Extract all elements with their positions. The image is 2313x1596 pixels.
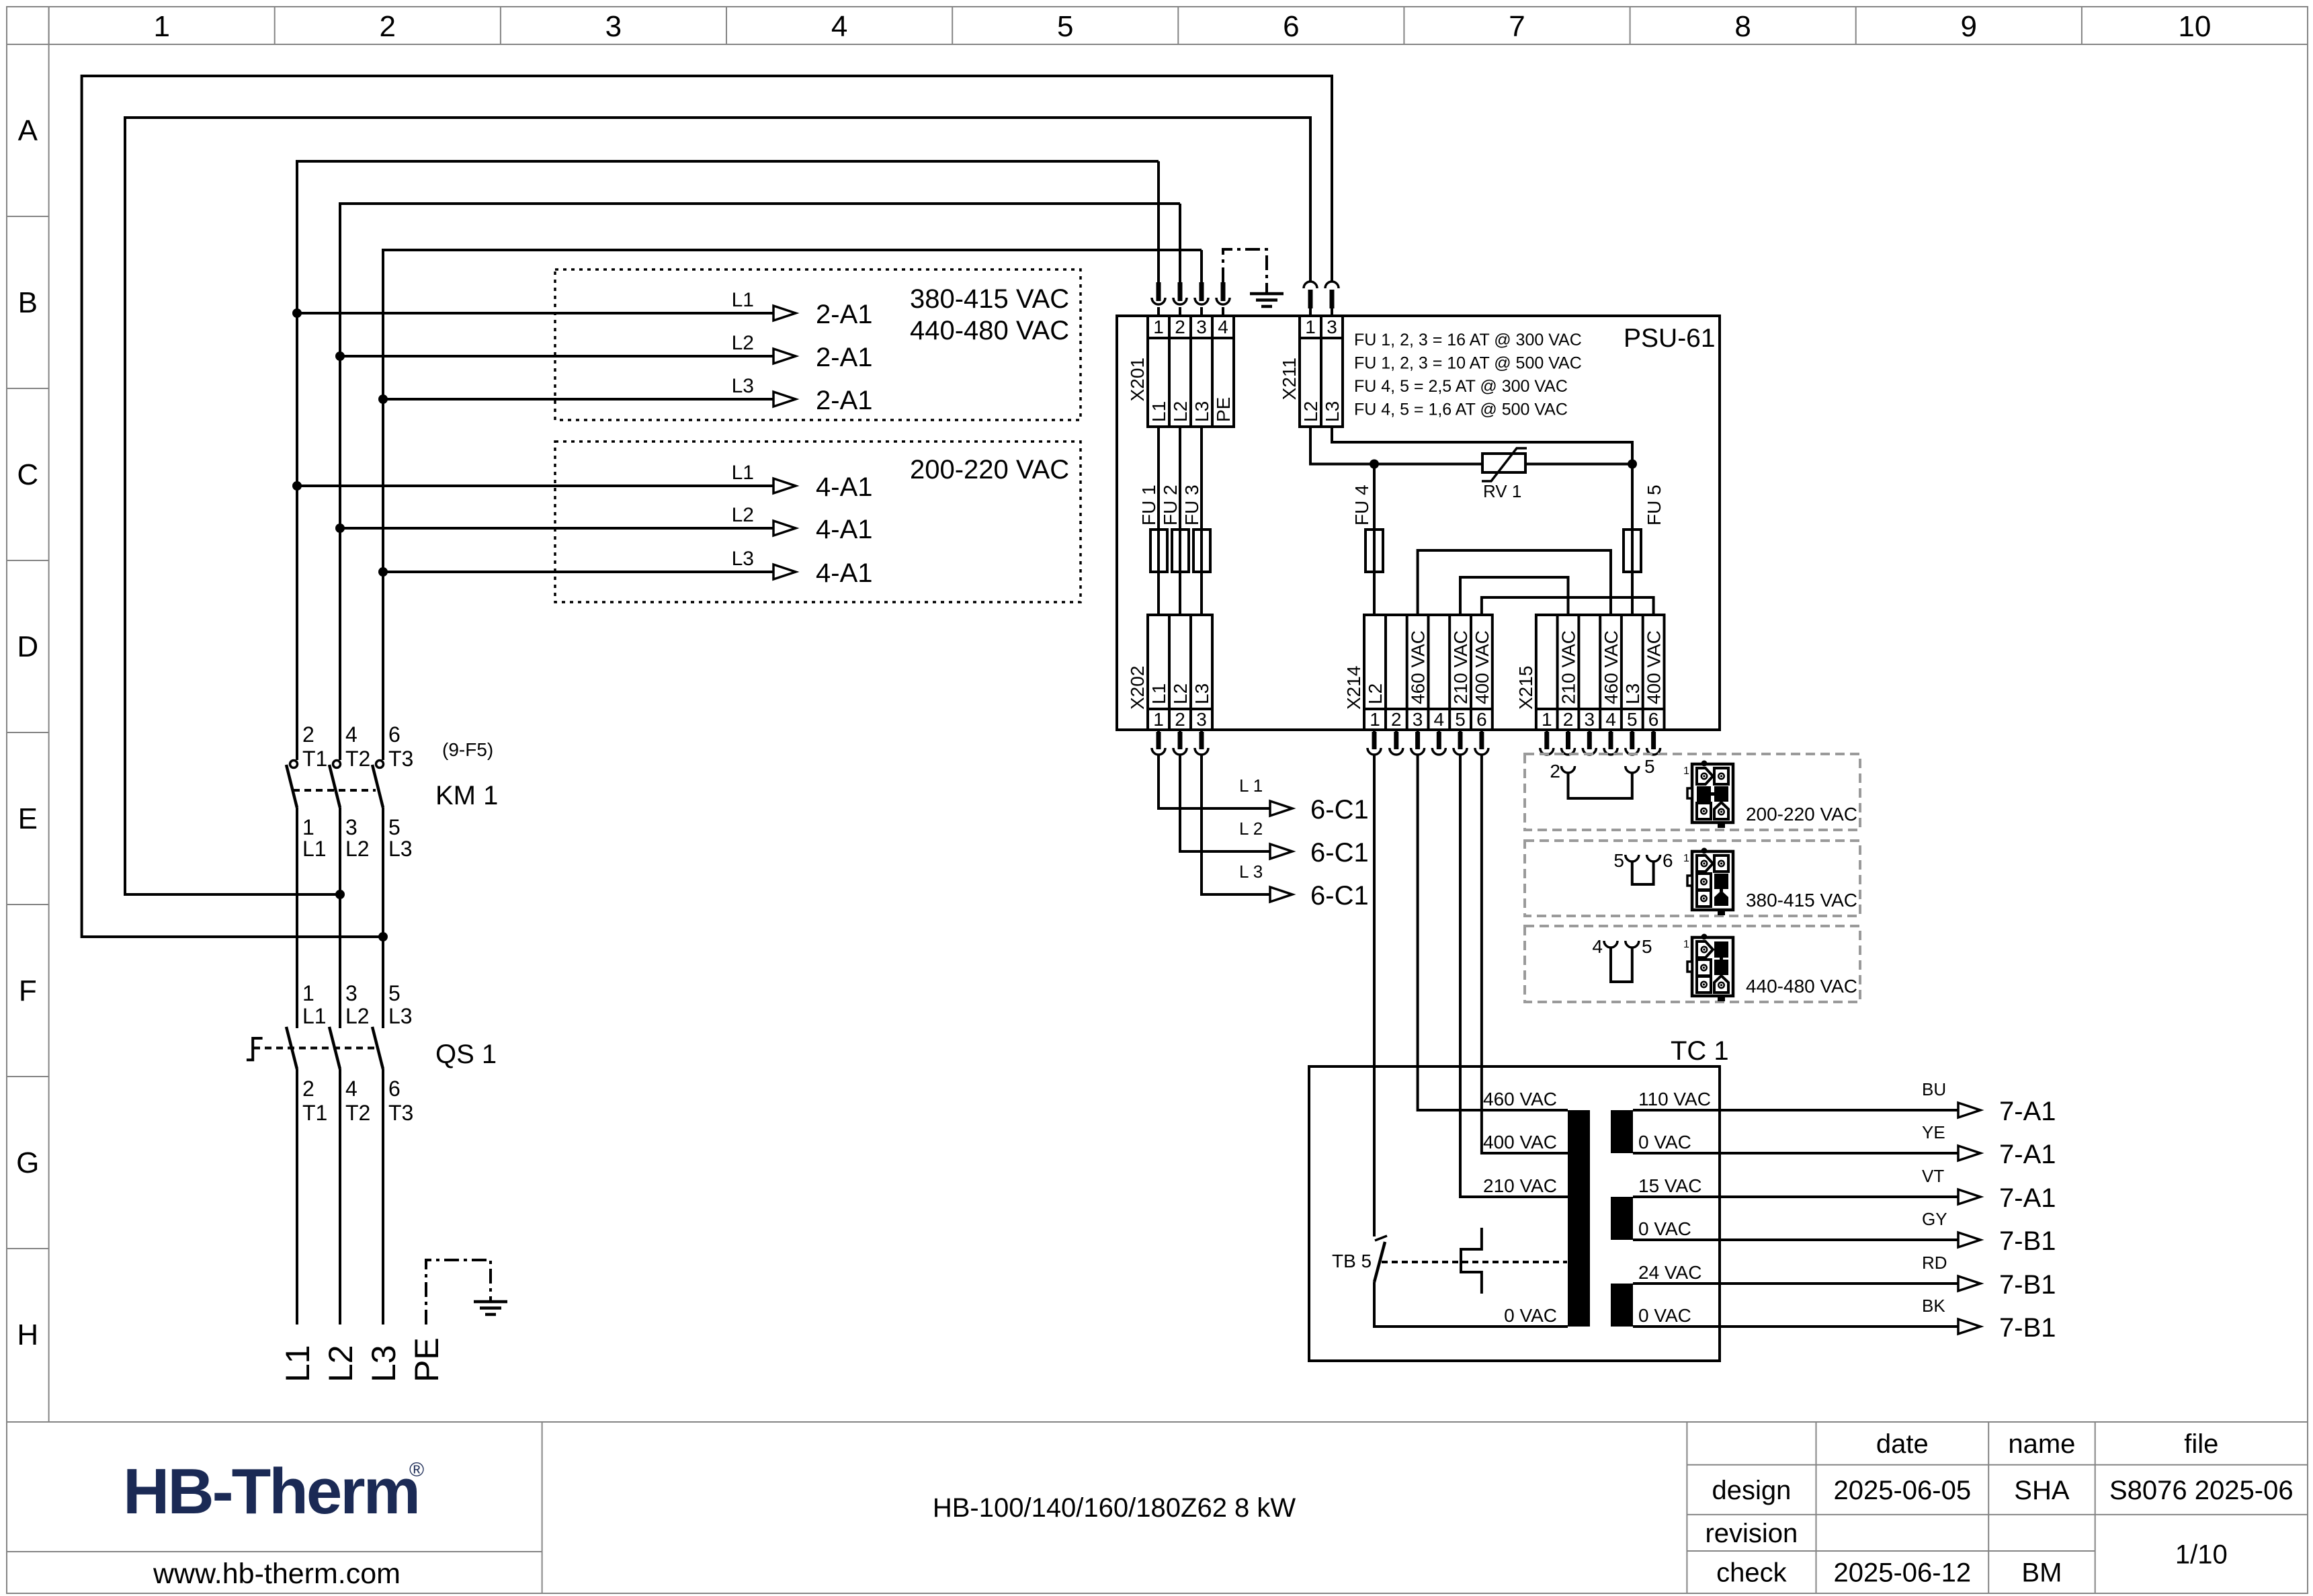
- svg-text:T3: T3: [388, 747, 413, 771]
- svg-text:0 VAC: 0 VAC: [1638, 1218, 1691, 1239]
- svg-text:www.hb-therm.com: www.hb-therm.com: [153, 1558, 401, 1590]
- svg-text:2-A1: 2-A1: [816, 386, 873, 415]
- svg-text:T2: T2: [345, 747, 370, 771]
- svg-text:C: C: [17, 458, 38, 491]
- svg-text:7-B1: 7-B1: [1999, 1226, 2056, 1256]
- svg-text:460 VAC: 460 VAC: [1483, 1089, 1557, 1109]
- svg-text:2: 2: [1550, 761, 1560, 782]
- svg-text:H: H: [17, 1318, 38, 1351]
- svg-text:2-A1: 2-A1: [816, 300, 873, 329]
- svg-text:X201: X201: [1127, 358, 1148, 401]
- svg-text:110 VAC: 110 VAC: [1638, 1089, 1711, 1109]
- svg-text:8: 8: [1734, 10, 1751, 43]
- svg-text:200-220 VAC: 200-220 VAC: [1746, 804, 1857, 825]
- svg-text:TB 5: TB 5: [1332, 1251, 1372, 1271]
- svg-text:1: 1: [302, 815, 314, 839]
- svg-text:380-415 VAC: 380-415 VAC: [1746, 890, 1857, 911]
- svg-text:T3: T3: [388, 1101, 413, 1125]
- svg-text:400 VAC: 400 VAC: [1483, 1132, 1557, 1152]
- svg-text:0 VAC: 0 VAC: [1504, 1305, 1557, 1326]
- svg-text:1/10: 1/10: [2175, 1540, 2228, 1570]
- svg-text:0 VAC: 0 VAC: [1638, 1132, 1691, 1152]
- svg-text:1: 1: [1683, 765, 1689, 777]
- svg-text:L3: L3: [388, 1004, 413, 1028]
- svg-text:L2: L2: [1170, 401, 1191, 422]
- svg-text:6-C1: 6-C1: [1310, 881, 1369, 911]
- svg-text:X215: X215: [1515, 666, 1536, 710]
- svg-text:L2: L2: [345, 837, 370, 861]
- svg-text:FU 4, 5 = 2,5 AT @ 300 VAC: FU 4, 5 = 2,5 AT @ 300 VAC: [1354, 377, 1568, 396]
- svg-text:6: 6: [388, 722, 401, 747]
- svg-text:X214: X214: [1343, 666, 1364, 710]
- svg-text:0 VAC: 0 VAC: [1638, 1305, 1691, 1326]
- svg-text:L3: L3: [1322, 401, 1343, 422]
- svg-text:PSU-61: PSU-61: [1624, 324, 1716, 353]
- svg-text:6: 6: [388, 1077, 401, 1101]
- svg-text:date: date: [1876, 1429, 1929, 1459]
- svg-text:7-A1: 7-A1: [1999, 1140, 2056, 1169]
- svg-text:FU 1, 2, 3 = 16 AT @ 300 VAC: FU 1, 2, 3 = 16 AT @ 300 VAC: [1354, 331, 1582, 349]
- svg-text:7-B1: 7-B1: [1999, 1313, 2056, 1343]
- svg-text:3: 3: [1413, 709, 1423, 730]
- svg-text:L1: L1: [732, 289, 754, 311]
- svg-text:5: 5: [1613, 850, 1624, 871]
- svg-text:L1: L1: [279, 1345, 317, 1382]
- svg-text:4: 4: [1218, 317, 1228, 337]
- svg-text:2025-06-12: 2025-06-12: [1833, 1558, 1971, 1588]
- svg-text:5: 5: [388, 815, 401, 839]
- svg-text:5: 5: [1642, 936, 1652, 957]
- svg-text:2: 2: [1563, 709, 1574, 730]
- svg-text:1: 1: [1542, 709, 1552, 730]
- svg-text:1: 1: [1683, 939, 1689, 950]
- svg-text:2: 2: [1391, 709, 1402, 730]
- svg-text:15 VAC: 15 VAC: [1638, 1175, 1701, 1196]
- svg-text:TC 1: TC 1: [1671, 1036, 1729, 1066]
- svg-text:460 VAC: 460 VAC: [1408, 630, 1429, 704]
- svg-text:design: design: [1712, 1476, 1791, 1505]
- svg-text:L2: L2: [322, 1345, 360, 1382]
- svg-text:7: 7: [1509, 10, 1525, 43]
- svg-text:(9-F5): (9-F5): [442, 739, 493, 760]
- svg-text:L2: L2: [732, 332, 754, 354]
- svg-text:HB-Therm: HB-Therm: [123, 1456, 419, 1527]
- svg-text:4: 4: [831, 10, 847, 43]
- svg-text:24 VAC: 24 VAC: [1638, 1262, 1701, 1283]
- svg-text:400 VAC: 400 VAC: [1472, 630, 1492, 704]
- svg-text:1: 1: [1305, 317, 1316, 337]
- svg-text:210 VAC: 210 VAC: [1483, 1175, 1557, 1196]
- svg-text:B: B: [18, 286, 38, 319]
- svg-text:®: ®: [409, 1459, 424, 1481]
- svg-text:L1: L1: [1148, 683, 1169, 704]
- svg-text:3: 3: [1585, 709, 1595, 730]
- svg-text:L2: L2: [732, 504, 754, 526]
- svg-text:4: 4: [345, 1077, 358, 1101]
- svg-text:5: 5: [1627, 709, 1638, 730]
- svg-text:file: file: [2184, 1429, 2218, 1459]
- svg-text:210 VAC: 210 VAC: [1558, 630, 1579, 704]
- svg-text:7-A1: 7-A1: [1999, 1183, 2056, 1213]
- svg-text:1: 1: [1153, 317, 1164, 337]
- svg-text:L3: L3: [732, 548, 754, 570]
- svg-text:L 3: L 3: [1239, 862, 1263, 882]
- svg-text:X211: X211: [1279, 358, 1300, 400]
- svg-text:4-A1: 4-A1: [816, 515, 873, 544]
- svg-text:L2: L2: [1365, 683, 1386, 704]
- svg-text:VT: VT: [1922, 1166, 1944, 1186]
- svg-text:4: 4: [1605, 709, 1616, 730]
- svg-text:5: 5: [1057, 10, 1073, 43]
- svg-text:L3: L3: [388, 837, 413, 861]
- svg-text:3: 3: [605, 10, 622, 43]
- svg-text:460 VAC: 460 VAC: [1601, 630, 1622, 704]
- svg-text:380-415 VAC: 380-415 VAC: [910, 284, 1069, 314]
- svg-text:T1: T1: [302, 1101, 327, 1125]
- svg-text:L3: L3: [1191, 401, 1212, 422]
- svg-text:3: 3: [345, 815, 358, 839]
- svg-text:L2: L2: [345, 1004, 370, 1028]
- svg-text:L2: L2: [1170, 683, 1191, 704]
- svg-text:4: 4: [1592, 936, 1603, 957]
- svg-text:T1: T1: [302, 747, 327, 771]
- svg-text:4: 4: [1434, 709, 1445, 730]
- svg-text:L3: L3: [1622, 683, 1643, 704]
- svg-text:2: 2: [1175, 709, 1185, 730]
- svg-text:2: 2: [380, 10, 396, 43]
- svg-text:1: 1: [1683, 853, 1689, 864]
- svg-text:RV 1: RV 1: [1483, 481, 1521, 501]
- svg-text:name: name: [2008, 1429, 2075, 1459]
- svg-text:6-C1: 6-C1: [1310, 838, 1369, 868]
- svg-text:6: 6: [1283, 10, 1299, 43]
- svg-text:QS 1: QS 1: [435, 1040, 497, 1069]
- svg-text:FU 1, 2, 3 = 10 AT @ 500 VAC: FU 1, 2, 3 = 10 AT @ 500 VAC: [1354, 354, 1582, 373]
- svg-text:3: 3: [1196, 709, 1207, 730]
- svg-text:L3: L3: [732, 375, 754, 397]
- svg-text:1: 1: [1370, 709, 1380, 730]
- svg-text:4: 4: [345, 722, 358, 747]
- svg-text:1: 1: [302, 981, 314, 1005]
- svg-text:BM: BM: [2021, 1558, 2062, 1588]
- svg-text:1: 1: [153, 10, 169, 43]
- svg-text:YE: YE: [1922, 1122, 1945, 1142]
- svg-text:3: 3: [1196, 317, 1207, 337]
- svg-text:2025-06-05: 2025-06-05: [1833, 1476, 1971, 1505]
- svg-text:7-A1: 7-A1: [1999, 1097, 2056, 1126]
- svg-text:FU 1: FU 1: [1138, 485, 1159, 526]
- svg-text:KM 1: KM 1: [435, 781, 498, 810]
- svg-text:3: 3: [345, 981, 358, 1005]
- svg-text:5: 5: [388, 981, 401, 1005]
- svg-text:G: G: [16, 1146, 39, 1179]
- svg-text:440-480 VAC: 440-480 VAC: [1746, 976, 1857, 997]
- svg-text:A: A: [18, 114, 38, 147]
- svg-text:2-A1: 2-A1: [816, 343, 873, 372]
- svg-text:2: 2: [302, 722, 314, 747]
- svg-text:PE: PE: [1213, 397, 1234, 422]
- svg-text:GY: GY: [1922, 1209, 1947, 1229]
- svg-text:7-B1: 7-B1: [1999, 1270, 2056, 1300]
- svg-text:L1: L1: [732, 462, 754, 484]
- svg-text:4-A1: 4-A1: [816, 558, 873, 588]
- svg-text:T2: T2: [345, 1101, 370, 1125]
- svg-text:HB-100/140/160/180Z62 8 kW: HB-100/140/160/180Z62 8 kW: [933, 1493, 1296, 1523]
- svg-text:2: 2: [302, 1077, 314, 1101]
- svg-text:RD: RD: [1922, 1253, 1947, 1273]
- svg-text:check: check: [1716, 1558, 1787, 1588]
- svg-text:FU 5: FU 5: [1644, 485, 1665, 526]
- svg-text:L1: L1: [302, 1004, 327, 1028]
- svg-text:L1: L1: [1148, 401, 1169, 422]
- svg-text:BU: BU: [1922, 1079, 1946, 1099]
- svg-text:X202: X202: [1127, 666, 1148, 710]
- svg-text:6: 6: [1648, 709, 1659, 730]
- svg-text:6: 6: [1476, 709, 1487, 730]
- svg-text:PE: PE: [408, 1337, 446, 1382]
- svg-text:200-220 VAC: 200-220 VAC: [910, 455, 1069, 485]
- svg-text:S8076 2025-06: S8076 2025-06: [2109, 1476, 2294, 1505]
- svg-text:L 1: L 1: [1239, 775, 1263, 796]
- svg-text:210 VAC: 210 VAC: [1450, 630, 1471, 704]
- svg-text:D: D: [17, 630, 38, 663]
- svg-text:6: 6: [1663, 850, 1673, 871]
- svg-text:BK: BK: [1922, 1296, 1945, 1316]
- svg-text:2: 2: [1175, 317, 1185, 337]
- svg-text:FU 2: FU 2: [1160, 485, 1181, 526]
- svg-text:L2: L2: [1300, 401, 1321, 422]
- svg-text:5: 5: [1644, 756, 1655, 777]
- svg-text:4-A1: 4-A1: [816, 472, 873, 502]
- svg-text:3: 3: [1327, 317, 1337, 337]
- svg-text:L3: L3: [365, 1345, 403, 1382]
- svg-text:L1: L1: [302, 837, 327, 861]
- svg-text:9: 9: [1961, 10, 1977, 43]
- svg-text:F: F: [19, 974, 37, 1007]
- svg-text:400 VAC: 400 VAC: [1644, 630, 1665, 704]
- svg-text:6-C1: 6-C1: [1310, 795, 1369, 825]
- svg-text:L3: L3: [1191, 683, 1212, 704]
- svg-text:1: 1: [1153, 709, 1164, 730]
- svg-text:FU 3: FU 3: [1181, 485, 1202, 526]
- svg-text:440-480 VAC: 440-480 VAC: [910, 316, 1069, 345]
- svg-text:E: E: [18, 802, 38, 835]
- svg-text:FU 4: FU 4: [1351, 485, 1372, 526]
- svg-text:SHA: SHA: [2014, 1476, 2070, 1505]
- svg-text:revision: revision: [1705, 1519, 1798, 1548]
- svg-text:5: 5: [1455, 709, 1466, 730]
- svg-text:10: 10: [2178, 10, 2211, 43]
- svg-text:FU 4, 5 = 1,6 AT @ 500 VAC: FU 4, 5 = 1,6 AT @ 500 VAC: [1354, 401, 1568, 419]
- svg-text:L 2: L 2: [1239, 818, 1263, 839]
